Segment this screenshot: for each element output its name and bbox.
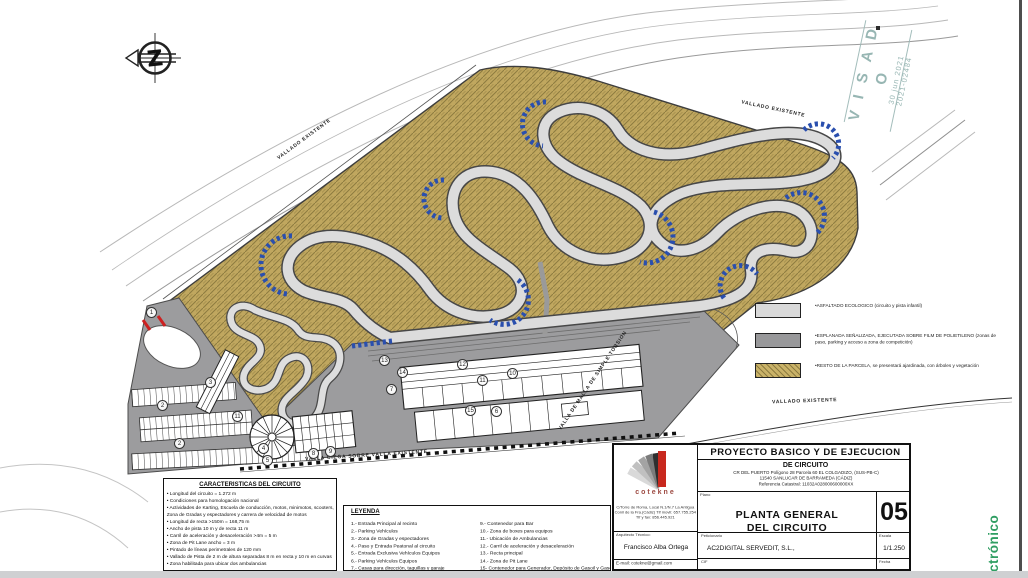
legend-item: 9.- Contenedor para Bar: [480, 520, 611, 527]
plan-marker-8: 8: [308, 448, 319, 459]
characteristic-item: • Zona habilitada para ubicar dos ambula…: [167, 560, 337, 567]
legend-box: LEYENDA 1.- Entrada Principal al recinto…: [343, 505, 611, 571]
date-label: Fecha: [879, 560, 909, 564]
title-block: cotekne C/Torre de Roma, Local N.1/N.7 L…: [612, 443, 911, 571]
date-cell: Fecha Junio 2021: [877, 558, 911, 571]
architect-label: Arquitecto Técnico:: [616, 533, 695, 537]
plan-sheet: Z VALLADO EXISTENTE VALLADO EXISTENTE VA…: [0, 0, 1028, 578]
cif-label: CIF: [701, 560, 871, 564]
plan-marker-11: 11: [232, 411, 243, 422]
legend-item: 14.- Zona de Pit Lane: [480, 557, 611, 564]
plan-marker-5: 5: [262, 455, 273, 466]
title-block-header: PROYECTO BASICO Y DE EJECUCION DE CIRCUI…: [698, 445, 911, 492]
project-subtitle: DE CIRCUITO: [698, 462, 911, 469]
surface-legend-label: •RESTO DE LA PARCELA, se presentará ajar…: [815, 363, 1002, 369]
viewer-right-edge: [1019, 0, 1022, 578]
plan-marker-10: 10: [507, 368, 518, 379]
firm-logo: cotekne: [614, 445, 697, 503]
characteristics-box: CARACTERISTICAS DEL CIRCUITO • Longitud …: [163, 478, 337, 571]
client-label: Peticionario: [701, 534, 871, 538]
legend-title: LEYENDA: [351, 509, 610, 515]
client-cell: Peticionario AC2DIGITAL SERVEDIT, S.L.,: [698, 532, 877, 558]
legend-item: 13.- Recta principal: [480, 550, 611, 557]
project-address: CR DEL PUERTO Polígono 28 Parcela 60 EL …: [698, 470, 911, 487]
characteristics-list: • Longitud del circuito = 1.272 m• Condi…: [164, 490, 337, 567]
title-block-firm-column: cotekne C/Torre de Roma, Local N.1/N.7 L…: [614, 445, 698, 571]
plan-marker-1: 1: [146, 307, 157, 318]
viewer-bottom-strip: [0, 571, 1028, 578]
sheet-title-line2: DEL CIRCUITO: [698, 522, 876, 532]
plan-marker-4: 4: [258, 443, 269, 454]
legend-column-right: 9.- Contenedor para Bar10.- Zona de boxe…: [480, 520, 611, 571]
architect-name: Francisco Alba Ortega: [616, 544, 696, 551]
plan-marker-12: 12: [457, 359, 468, 370]
surface-swatch-hatch: [755, 363, 801, 378]
surface-legend-row: •ESPLANADA SEÑALIZADA, EJECUTADA SOBRE F…: [755, 333, 1028, 356]
legend-item: 10.- Zona de boxes para equipos: [480, 527, 611, 534]
characteristic-item: • Longitud de recta >150m = 168,75 m: [167, 518, 337, 525]
characteristic-item: • Carril de aceleración y desaceleración…: [167, 532, 337, 539]
architect-cell: Arquitecto Técnico: Francisco Alba Orteg…: [614, 531, 698, 559]
scale-label: Escala: [879, 534, 909, 538]
characteristic-item: • Actividades de Karting, Escuela de con…: [167, 504, 337, 518]
characteristic-item: • Longitud del circuito = 1.272 m: [167, 490, 337, 497]
characteristic-item: • Pintado de líneas perimetrales de 120 …: [167, 546, 337, 553]
firm-name: cotekne: [614, 489, 697, 496]
stamp-corner-mark: [876, 26, 880, 30]
legend-item: 11.- Ubicación de Ambulancias: [480, 535, 611, 542]
scale-value: 1/1.250: [879, 545, 909, 552]
plan-marker-11: 11: [477, 375, 488, 386]
tent-structure: [250, 415, 294, 459]
plano-label: Plano: [700, 493, 876, 497]
surface-legend-row: •ASFALTADO ECOLOGICO (circuito y pista i…: [755, 303, 1028, 318]
sheet-title-cell: Plano PLANTA GENERAL DEL CIRCUITO: [698, 492, 877, 532]
plan-marker-6: 6: [491, 406, 502, 417]
electronic-visa-text: ctrónico: [986, 515, 1001, 572]
project-address-line3: Referencia Catastral: 11032A028000600000…: [698, 481, 911, 487]
characteristics-title: CARACTERISTICAS DEL CIRCUITO: [166, 482, 334, 488]
sheet-title: PLANTA GENERAL DEL CIRCUITO: [698, 509, 876, 532]
surface-legend-row: •RESTO DE LA PARCELA, se presentará ajar…: [755, 363, 1028, 378]
north-arrow-icon: Z: [126, 33, 181, 83]
characteristic-item: • Vallado de Pista de 2 m de altura sepa…: [167, 553, 337, 560]
firm-address: C/Torre de Roma, Local N.1/N.7 La Antigu…: [614, 505, 696, 520]
surface-swatch-light: [755, 303, 801, 318]
plan-marker-13: 13: [379, 355, 390, 366]
project-title: PROYECTO BASICO Y DE EJECUCION: [698, 445, 911, 460]
plan-marker-3: 3: [205, 377, 216, 388]
plan-marker-2: 2: [174, 438, 185, 449]
plan-marker-15: 15: [465, 405, 476, 416]
plan-marker-2: 2: [157, 400, 168, 411]
client-name: AC2DIGITAL SERVEDIT, S.L.,: [707, 545, 873, 552]
plan-marker-14: 14: [397, 367, 408, 378]
svg-text:Z: Z: [146, 46, 164, 73]
cif-cell: CIF B-72,170,889: [698, 558, 877, 571]
roof-building: [292, 411, 355, 453]
surface-legend-label: •ASFALTADO ECOLOGICO (circuito y pista i…: [815, 303, 1002, 309]
characteristic-item: • Condiciones para homologación nacional: [167, 497, 337, 504]
sheet-title-line1: PLANTA GENERAL: [698, 509, 876, 522]
characteristic-item: • Zona de Pit Lane ancho = 3 m: [167, 539, 337, 546]
plan-marker-9: 9: [325, 446, 336, 457]
characteristic-item: • Ancho de pista 10 m y de recta 11 m: [167, 525, 337, 532]
email-cell: E-mail: cotekne@gmail.com: [614, 559, 698, 571]
legend-item: 12.- Carril de aceleración y desacelerac…: [480, 542, 611, 549]
sheet-number: 05: [877, 492, 911, 532]
surface-legend-label: •ESPLANADA SEÑALIZADA, EJECUTADA SOBRE F…: [815, 333, 1002, 345]
plan-marker-7: 7: [386, 384, 397, 395]
firm-email: E-mail: cotekne@gmail.com: [616, 561, 695, 566]
surface-swatch-dark: [755, 333, 801, 348]
scale-cell: Escala 1/1.250: [877, 532, 911, 558]
